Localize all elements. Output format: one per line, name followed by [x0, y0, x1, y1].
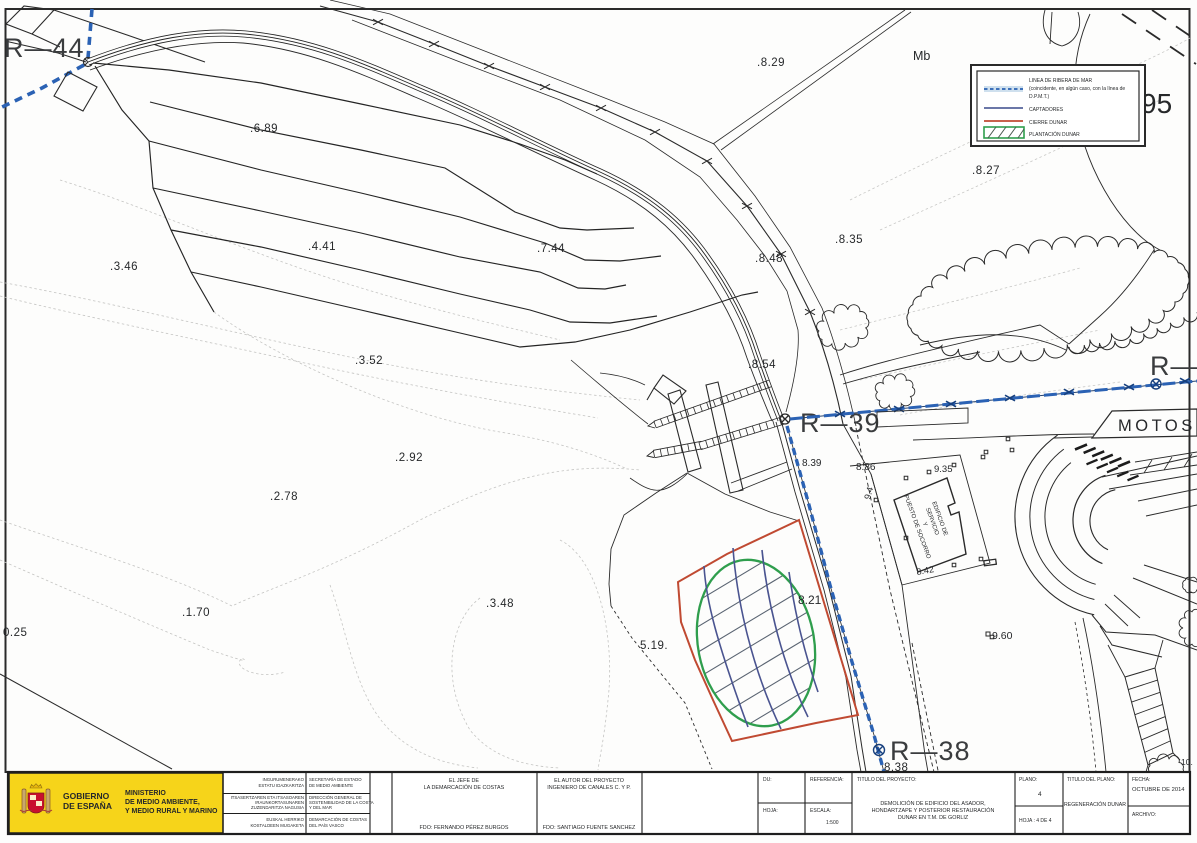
- svg-text:FECHA:: FECHA:: [1132, 777, 1150, 783]
- svg-text:DE MEDIO AMBIENTE: DE MEDIO AMBIENTE: [309, 783, 353, 788]
- svg-text:DEL PAÍS VASCO: DEL PAÍS VASCO: [309, 823, 344, 828]
- svg-text:SECRETARÍA DE ESTADO: SECRETARÍA DE ESTADO: [309, 777, 362, 782]
- svg-text:KOSTALDEEN MUGAKETA: KOSTALDEEN MUGAKETA: [250, 823, 304, 828]
- svg-text:ARCHIVO:: ARCHIVO:: [1132, 812, 1156, 818]
- svg-text:ESCALA:: ESCALA:: [810, 808, 831, 814]
- svg-text:INGURUMENERAKO: INGURUMENERAKO: [262, 777, 304, 782]
- svg-text:DUNAR EN T.M. DE GORLIZ: DUNAR EN T.M. DE GORLIZ: [898, 815, 969, 821]
- svg-text:PLANO:: PLANO:: [1019, 777, 1037, 783]
- svg-text:EUSKAL HERRIKO: EUSKAL HERRIKO: [266, 817, 304, 822]
- svg-text:FDO: SANTIAGO FUENTE SANCHEZ: FDO: SANTIAGO FUENTE SANCHEZ: [543, 825, 636, 831]
- svg-text:LA DEMARCACIÓN DE COSTAS: LA DEMARCACIÓN DE COSTAS: [424, 784, 505, 791]
- svg-text:Y MEDIO RURAL Y MARINO: Y MEDIO RURAL Y MARINO: [125, 808, 218, 815]
- svg-text:HOJA:: HOJA:: [763, 808, 778, 814]
- svg-text:HONDARTZAPE Y POSTERIOR RESTAU: HONDARTZAPE Y POSTERIOR RESTAURACIÓN: [872, 807, 995, 814]
- svg-text:DE MEDIO AMBIENTE,: DE MEDIO AMBIENTE,: [125, 799, 200, 806]
- svg-text:ESTATU IDAZKARITZA: ESTATU IDAZKARITZA: [259, 783, 305, 788]
- svg-text:TITULO DEL PROYECTO:: TITULO DEL PROYECTO:: [857, 777, 916, 783]
- svg-text:FDO: FERNANDO PÉREZ BURGOS: FDO: FERNANDO PÉREZ BURGOS: [420, 824, 509, 831]
- svg-text:DE ESPAÑA: DE ESPAÑA: [63, 801, 112, 811]
- svg-text:ZUZENDARITZA NAGUSIA: ZUZENDARITZA NAGUSIA: [251, 805, 304, 810]
- svg-text:DEMARCACIÓN DE COSTAS: DEMARCACIÓN DE COSTAS: [309, 817, 367, 822]
- svg-text:HOJA : 4 DE 4: HOJA : 4 DE 4: [1019, 818, 1052, 824]
- svg-text:DU:: DU:: [763, 777, 772, 783]
- svg-text:EL AUTOR DEL PROYECTO: EL AUTOR DEL PROYECTO: [554, 778, 624, 784]
- svg-text:GOBIERNO: GOBIERNO: [63, 791, 110, 801]
- svg-text:Y DEL MAR: Y DEL MAR: [309, 805, 332, 810]
- svg-text:OCTUBRE DE 2014: OCTUBRE DE 2014: [1132, 787, 1185, 793]
- svg-text:EL JEFE DE: EL JEFE DE: [449, 778, 479, 784]
- svg-text:MINISTERIO: MINISTERIO: [125, 790, 166, 797]
- svg-text:REGENERACIÓN DUNAR: REGENERACIÓN DUNAR: [1064, 801, 1126, 808]
- svg-text:4: 4: [1038, 791, 1042, 798]
- svg-text:TITULO DEL PLANO:: TITULO DEL PLANO:: [1067, 777, 1115, 783]
- svg-text:REFERENCIA:: REFERENCIA:: [810, 777, 844, 783]
- svg-text:INGENIERO DE CANALES C. Y P.: INGENIERO DE CANALES C. Y P.: [547, 785, 631, 791]
- svg-text:DEMOLICIÓN DE EDIFICIO DEL: DEMOLICIÓN DE EDIFICIO DEL ASADOR,: [880, 800, 986, 807]
- svg-text:1:500: 1:500: [826, 820, 839, 826]
